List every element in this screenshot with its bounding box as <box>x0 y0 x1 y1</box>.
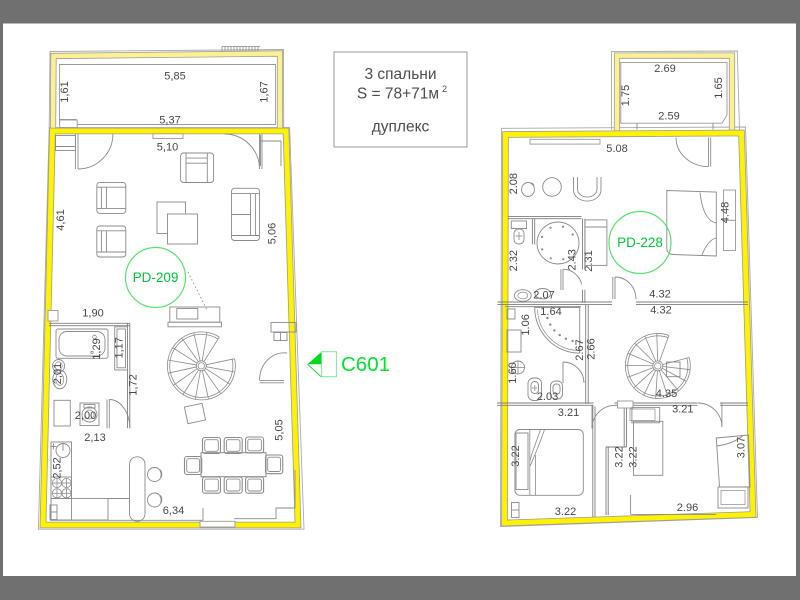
svg-text:PD-209: PD-209 <box>133 270 179 285</box>
svg-text:2: 2 <box>442 84 447 94</box>
svg-text:4.35: 4.35 <box>656 388 677 400</box>
svg-text:6,34: 6,34 <box>163 505 184 517</box>
svg-text:1,90: 1,90 <box>82 308 103 320</box>
svg-text:1.60: 1.60 <box>507 362 519 383</box>
svg-text:1.06: 1.06 <box>520 314 532 335</box>
svg-text:2,52: 2,52 <box>52 457 64 478</box>
svg-text:3.22: 3.22 <box>614 446 626 467</box>
svg-text:5,05: 5,05 <box>274 419 286 440</box>
svg-text:2,00: 2,00 <box>75 410 96 422</box>
svg-text:2.03: 2.03 <box>537 391 558 403</box>
svg-text:5,85: 5,85 <box>164 71 185 83</box>
svg-text:1,61: 1,61 <box>59 81 71 102</box>
svg-text:4.32: 4.32 <box>650 305 671 317</box>
svg-text:1,17: 1,17 <box>114 337 126 358</box>
svg-text:2,13: 2,13 <box>84 432 105 444</box>
svg-text:4.32: 4.32 <box>649 289 670 301</box>
svg-text:1.65: 1.65 <box>713 77 725 98</box>
svg-text:2.43: 2.43 <box>567 249 579 270</box>
svg-text:2.07: 2.07 <box>533 290 554 302</box>
svg-text:2,01: 2,01 <box>52 363 64 384</box>
svg-text:3.22: 3.22 <box>555 506 576 518</box>
svg-text:2.31: 2.31 <box>583 250 595 271</box>
svg-text:5,06: 5,06 <box>267 223 279 244</box>
svg-text:5,10: 5,10 <box>157 142 178 154</box>
svg-text:2.32: 2.32 <box>508 250 520 271</box>
svg-text:дуплекс: дуплекс <box>372 119 430 136</box>
svg-text:2.67: 2.67 <box>574 339 586 360</box>
svg-text:1,29: 1,29 <box>91 338 103 359</box>
svg-text:2.66: 2.66 <box>586 338 598 359</box>
svg-text:1,72: 1,72 <box>127 374 139 395</box>
svg-text:5.08: 5.08 <box>606 143 627 155</box>
svg-text:2.59: 2.59 <box>658 111 679 123</box>
svg-text:3.21: 3.21 <box>672 404 693 416</box>
svg-text:4,61: 4,61 <box>55 209 67 230</box>
svg-text:1,67: 1,67 <box>259 81 271 102</box>
svg-text:C601: C601 <box>341 353 390 376</box>
svg-text:1.75: 1.75 <box>620 85 632 106</box>
svg-text:2.69: 2.69 <box>654 63 675 75</box>
svg-text:2.08: 2.08 <box>508 173 520 194</box>
svg-text:3.22: 3.22 <box>510 445 522 466</box>
svg-text:4.48: 4.48 <box>720 202 732 223</box>
svg-text:3.21: 3.21 <box>558 407 579 419</box>
svg-text:5,37: 5,37 <box>159 115 180 127</box>
svg-text:S = 78+71м: S = 78+71м <box>357 86 439 103</box>
svg-text:PD-228: PD-228 <box>617 235 663 250</box>
svg-text:3.07: 3.07 <box>736 437 748 458</box>
svg-text:1.64: 1.64 <box>540 306 561 318</box>
svg-text:2.96: 2.96 <box>677 502 698 514</box>
svg-text:3 спальни: 3 спальни <box>364 66 436 83</box>
svg-text:3.22: 3.22 <box>628 446 640 467</box>
